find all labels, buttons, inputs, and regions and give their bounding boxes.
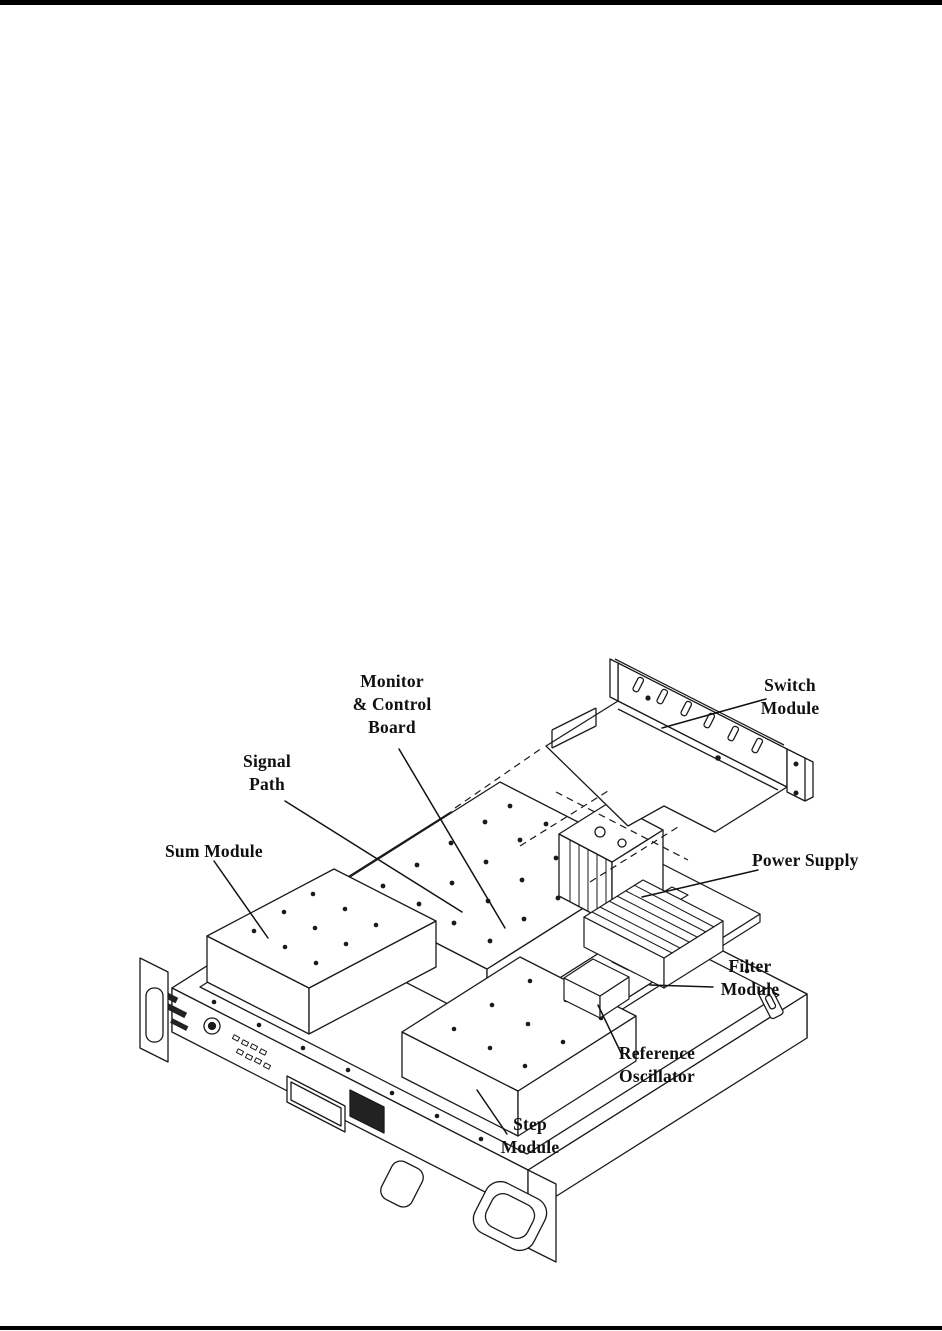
document-page: Monitor & Control Board Switch Module Si… [0,0,942,1331]
label-step-module: Step Module [501,1113,560,1159]
label-signal-path: Signal Path [243,750,291,796]
chassis-exploded-diagram: Monitor & Control Board Switch Module Si… [0,0,942,1331]
front-handle-mid [377,1158,426,1211]
label-switch-module: Switch Module [761,674,820,720]
label-power-supply: Power Supply [752,849,859,872]
label-sum-module: Sum Module [165,840,263,863]
page-bottom-rule [0,1326,942,1330]
label-monitor-control-board: Monitor & Control Board [353,670,432,738]
label-filter-module: Filter Module [721,955,780,1001]
chassis-line-art [0,0,942,1331]
label-reference-oscillator: Reference Oscillator [619,1042,695,1088]
rack-ear-left-handle [146,988,163,1042]
